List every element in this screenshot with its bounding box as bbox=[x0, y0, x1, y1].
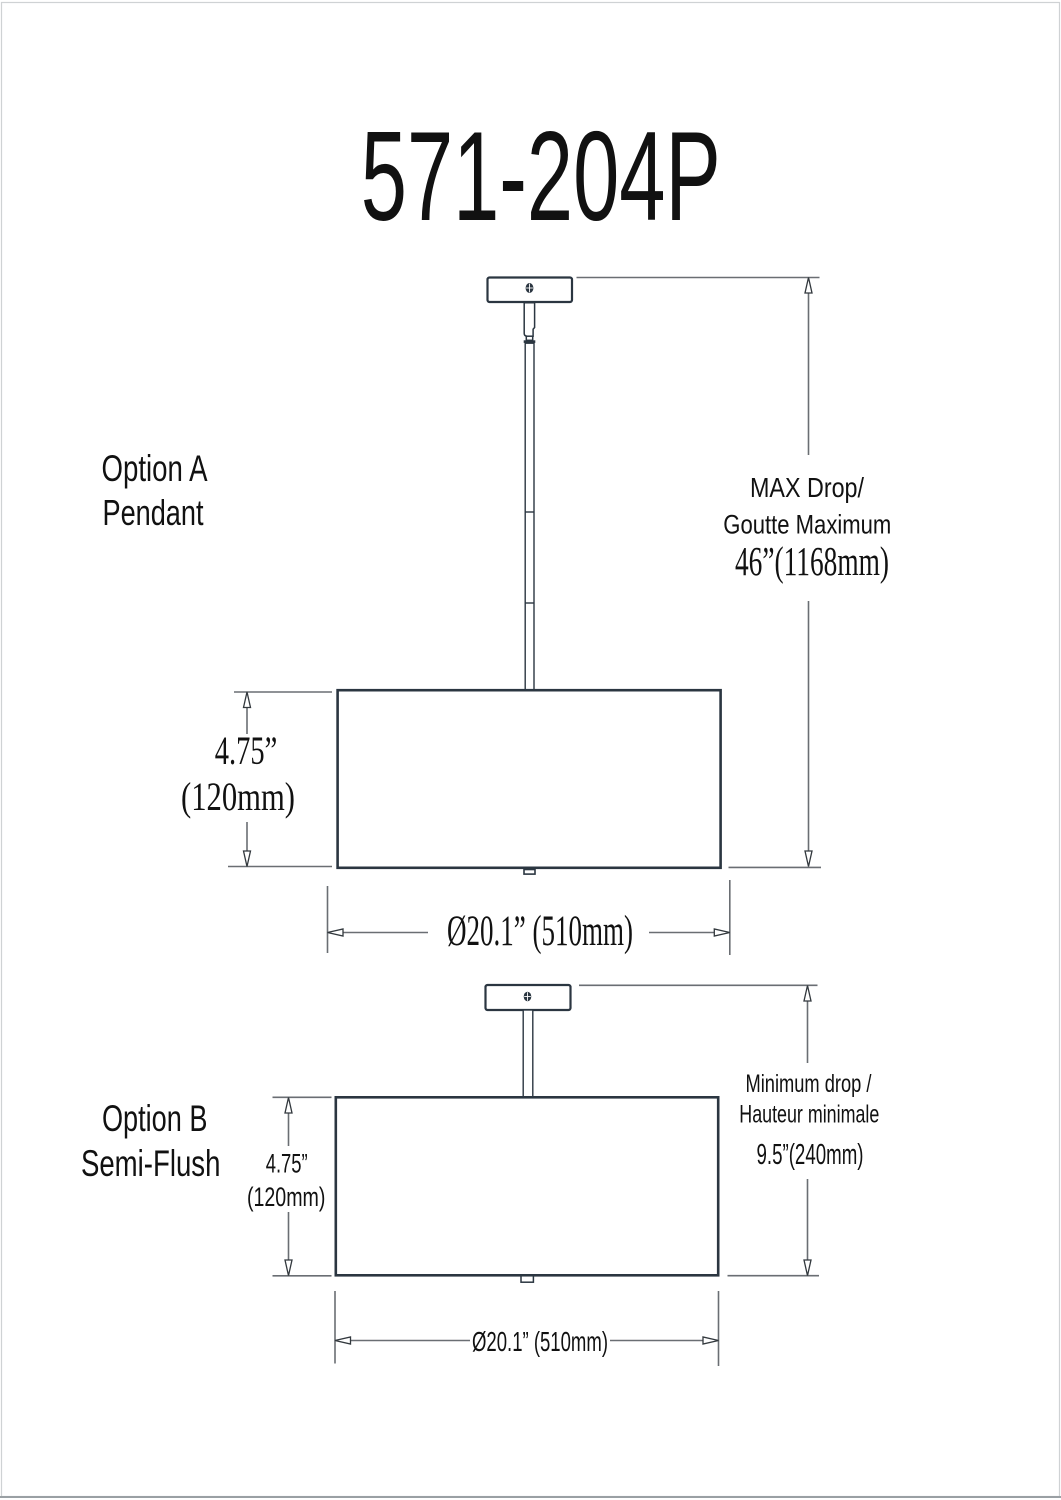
svg-text:9.5”(240mm): 9.5”(240mm) bbox=[757, 1139, 864, 1171]
svg-text:Minimum drop /: Minimum drop / bbox=[746, 1070, 872, 1098]
svg-text:4.75”: 4.75” bbox=[266, 1149, 308, 1179]
svg-text:46”(1168mm): 46”(1168mm) bbox=[735, 538, 889, 584]
svg-text:(120mm): (120mm) bbox=[247, 1182, 326, 1212]
svg-text:Option B: Option B bbox=[102, 1098, 208, 1139]
svg-text:Hauteur minimale: Hauteur minimale bbox=[739, 1101, 879, 1129]
svg-text:Pendant: Pendant bbox=[103, 492, 204, 533]
svg-text:Ø20.1” (510mm): Ø20.1” (510mm) bbox=[472, 1326, 608, 1357]
svg-text:Option A: Option A bbox=[102, 448, 208, 489]
svg-text:571-204P: 571-204P bbox=[361, 105, 721, 247]
svg-text:Semi-Flush: Semi-Flush bbox=[81, 1143, 221, 1184]
svg-text:Goutte Maximum: Goutte Maximum bbox=[723, 510, 891, 540]
svg-text:MAX Drop/: MAX Drop/ bbox=[750, 472, 864, 503]
svg-text:4.75”: 4.75” bbox=[215, 728, 278, 773]
svg-text:(120mm): (120mm) bbox=[181, 774, 295, 819]
svg-text:Ø20.1” (510mm): Ø20.1” (510mm) bbox=[447, 908, 633, 955]
